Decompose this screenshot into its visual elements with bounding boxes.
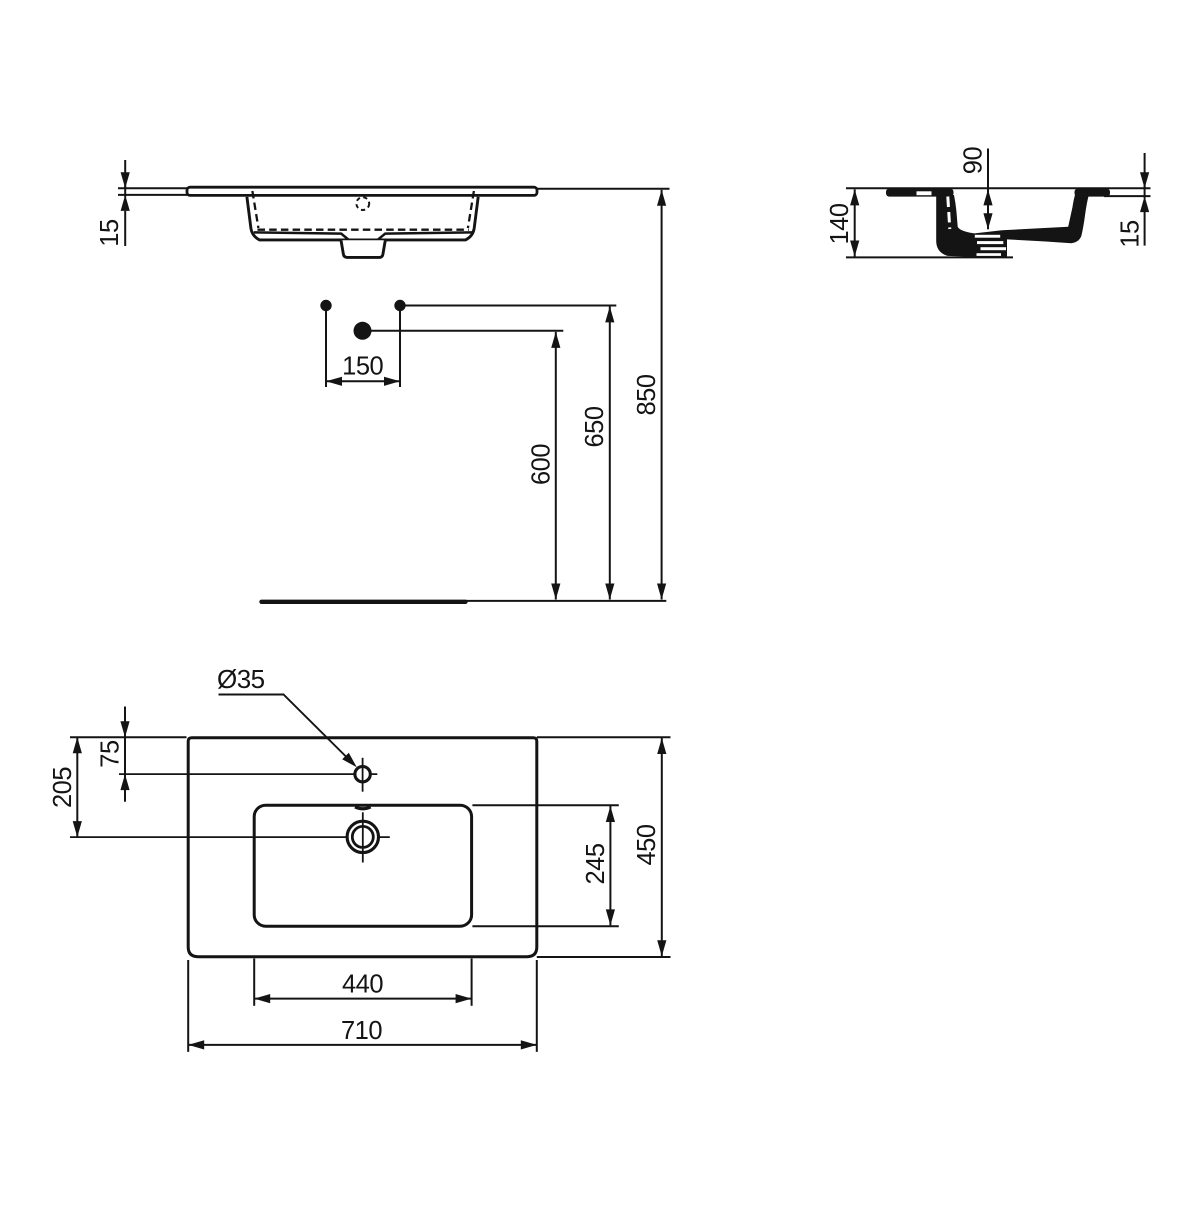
svg-text:90: 90 <box>960 147 988 175</box>
svg-text:15: 15 <box>96 219 124 247</box>
svg-text:245: 245 <box>582 843 610 884</box>
svg-text:710: 710 <box>341 1017 382 1045</box>
svg-text:Ø35: Ø35 <box>217 664 265 694</box>
svg-text:650: 650 <box>581 406 609 447</box>
svg-text:850: 850 <box>633 374 661 415</box>
svg-text:150: 150 <box>342 353 383 381</box>
svg-text:450: 450 <box>633 824 661 865</box>
svg-text:140: 140 <box>826 203 854 244</box>
svg-text:15: 15 <box>1117 220 1145 248</box>
svg-text:600: 600 <box>527 444 555 485</box>
svg-text:205: 205 <box>49 767 77 808</box>
svg-text:440: 440 <box>342 971 383 999</box>
svg-text:75: 75 <box>97 740 125 768</box>
